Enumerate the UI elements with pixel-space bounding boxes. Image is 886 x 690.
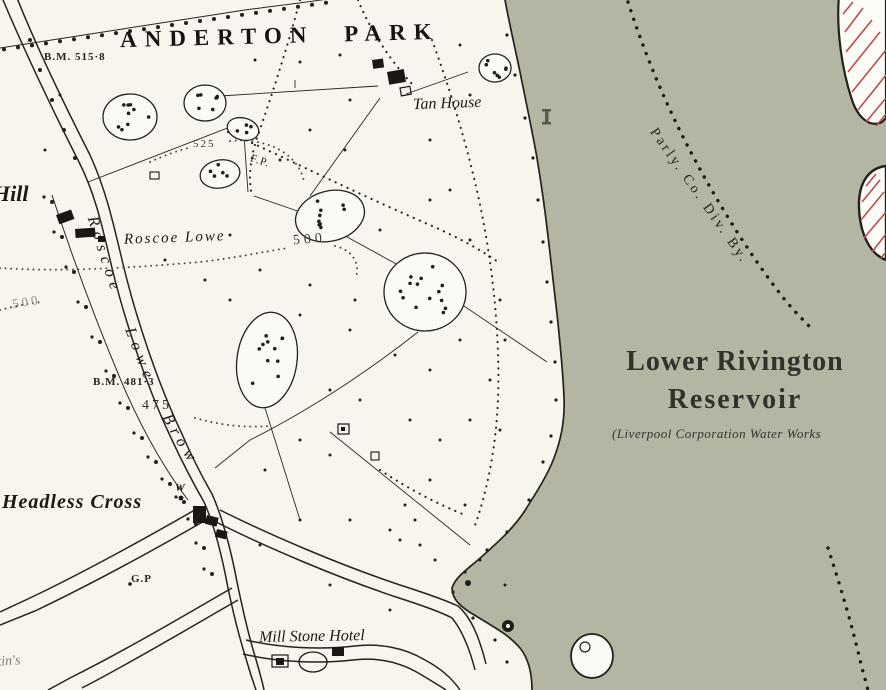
shore-dot [545,280,548,283]
buildings [56,58,411,672]
shore-dot [553,360,556,363]
field-dot [394,354,397,357]
field-dot [434,559,437,562]
field-dot [409,419,412,422]
roadside-tree-dot [42,195,45,198]
tree-dot [341,203,345,207]
tree-dot [440,299,444,303]
hedgerow-tree-dot [254,11,258,15]
partial-label: kin's [0,654,21,670]
tree-dot [215,95,219,99]
headless-cross-label: Headless Cross [2,492,142,512]
roadside-tree-dot [84,305,88,309]
shore-dot [523,116,526,119]
shore-dot [541,240,544,243]
roadside-tree-dot [182,500,186,504]
tree-dot [495,74,499,78]
field-dot [309,129,312,132]
reservoir-name-line1: Lower Rivington [596,346,874,378]
hedgerow-tree-dot [310,3,314,7]
shore-dot [536,198,539,201]
hedgerow-tree-dot [16,45,20,49]
roadside-tree-dot [28,38,32,42]
tree-dot [317,220,321,224]
roadside-tree-dot [146,455,149,458]
roadside-tree-dot [90,335,93,338]
shore-dot [513,73,516,76]
reservoir-title: Lower Rivington Reservoir [596,346,874,416]
field-dot [359,399,362,402]
tree-dot [249,125,253,129]
shore-dot [505,660,508,663]
reservoir-water [452,0,886,690]
tree-dot [129,103,133,107]
contour-475-label: 475 [142,399,172,413]
field-dot [504,339,507,342]
hedgerow-tree-dot [198,19,202,23]
hedgerow-tree-dot [30,43,34,47]
shore-dot [505,530,508,533]
tree-dot [276,375,280,379]
hedgerow-tree-dot [324,1,328,5]
tree-dot [419,277,423,281]
shore-dot [505,33,508,36]
field-dot [379,229,382,232]
shore-dot [541,460,544,463]
field-dot [349,329,352,332]
hedgerow-tree-dot [100,33,104,37]
tree-dot [257,347,261,351]
field-dot [464,504,467,507]
tree-dot [401,296,405,300]
shore-dot [493,638,496,641]
field-dot [479,559,482,562]
field-dot [309,284,312,287]
tree-dot [484,63,488,67]
roadside-tree-dot [194,522,198,526]
tree-dot [319,226,323,230]
field-dot [229,299,232,302]
hedgerow-tree-dot [226,15,230,19]
tree-dot [437,290,441,294]
hedgerow-tree-dot [282,7,286,11]
roadside-tree-dot [202,567,205,570]
roadside-tree-dot [168,482,172,486]
field-dot [254,59,257,62]
tree-dot [318,214,322,218]
tree-dot [428,297,432,301]
field-dot [469,239,472,242]
roadside-tree-dot [62,128,66,132]
tree-dot [236,129,240,133]
shore-dot [549,320,552,323]
tree-dot [127,112,131,116]
hedgerow-tree-dot [86,35,90,39]
shore-dot [531,156,534,159]
tree-dot [399,289,403,293]
tree-dot [431,265,435,269]
field-dot [299,519,302,522]
tree-dot [216,163,220,167]
tree-dot [409,275,413,279]
tree-dot [221,171,225,175]
field-dot [164,259,167,262]
field-dot [449,189,452,192]
tree-dot [120,128,124,132]
roadside-tree-dot [154,460,158,464]
shore-dot [549,434,552,437]
reservoir-subtitle: (Liverpool Corporation Water Works [612,427,821,440]
field-dot [44,149,47,152]
tree-dot [266,340,270,344]
field-dot [414,519,417,522]
hedgerow-tree-dot [58,39,62,43]
tree-dot [281,336,285,340]
field-dot [459,339,462,342]
field-dot [299,439,302,442]
roadside-tree-dot [186,517,189,520]
roadside-tree-dot [126,406,130,410]
hedgerow-tree-dot [296,5,300,9]
tree-dot [197,107,201,111]
field-dot [299,314,302,317]
contour-525-label: 525 [193,139,216,150]
tree-dot [414,306,418,310]
well-label: W [175,483,185,494]
tree-dot [316,199,320,203]
field-dot [204,279,207,282]
tree-dot [245,131,249,135]
tree-dot [276,359,280,363]
tree-dot [196,93,200,97]
roadside-tree-dot [64,265,67,268]
field-dot [344,149,347,152]
roadside-tree-dot [38,68,42,72]
reservoir-name-line2: Reservoir [596,384,874,416]
tree-dot [440,284,444,288]
roadside-tree-dot [210,572,214,576]
tree-dot [122,103,126,107]
tree-dot [147,115,151,119]
field-dot [339,54,342,57]
hedgerow-tree-dot [44,41,48,45]
roadside-tree-dot [140,436,144,440]
guide-post-label: G.P [131,574,152,585]
field-dot [404,504,407,507]
tree-dot [264,334,268,338]
roadside-tree-dot [118,401,121,404]
shore-dot [451,590,454,593]
roadside-tree-dot [50,98,54,102]
tree-dot [493,71,497,75]
hedgerow-tree-dot [212,17,216,21]
map-canvas: Roscoe Lowe Brow ANDERTON PARK B.M. 515·… [0,0,886,690]
benchmark-481-label: B.M. 481·3 [93,377,155,388]
field-dot [329,389,332,392]
tree-dot [261,343,265,347]
hedgerow-tree-dot [72,37,76,41]
shore-dot [471,616,474,619]
field-dot [264,469,267,472]
field-dot [489,379,492,382]
shore-dot [463,570,466,573]
tree-dot [225,174,229,178]
field-dot [329,584,332,587]
tree-dot [319,208,323,212]
roadside-tree-dot [60,235,64,239]
mill-stone-hotel-label: Mill Stone Hotel [259,628,365,646]
field-dot [354,299,357,302]
contour-dotted-lines [0,140,357,426]
tree-dot [342,207,346,211]
tree-dot [273,347,277,351]
tree-dot [416,282,420,286]
tan-house-label: Tan House [413,95,482,113]
hedgerow-tree-dot [240,13,244,17]
field-dot [349,99,352,102]
field-dot [499,299,502,302]
tree-dot [211,108,215,112]
hedgerow-tree-dot [114,31,118,35]
tree-dot [408,282,412,286]
roadside-tree-dot [132,431,135,434]
shore-dot [527,498,530,501]
island [571,634,613,678]
hill-label: Hill [0,183,28,205]
shore-dot [554,398,557,401]
roadside-tree-dot [76,300,79,303]
tree-dot [486,59,490,63]
tree-dot [132,108,136,112]
benchmark-515-label: B.M. 515·8 [44,52,106,63]
tree-dot [266,359,270,363]
roadside-tree-dot [50,200,54,204]
field-dot [419,544,422,547]
tree-dot [209,170,213,174]
field-dot [279,159,282,162]
field-dot [349,519,352,522]
field-boundaries [88,72,547,545]
hedgerow-tree-dot [268,9,272,13]
field-dot [389,609,392,612]
tree-dot [444,307,448,311]
contour-500-label: 500 [292,232,326,249]
field-dot [499,429,502,432]
tree-dot [251,381,255,385]
park-dotted-lines [228,0,498,528]
field-dot [259,544,262,547]
roadside-tree-dot [98,340,102,344]
roadside-tree-dot [73,156,77,160]
roadside-tree-dot [202,546,206,550]
tree-dot [213,174,217,178]
field-dot [399,539,402,542]
field-dot [439,439,442,442]
tree-dot [504,67,508,71]
field-dot [429,199,432,202]
roadside-tree-dot [174,495,177,498]
tree-dot [442,311,446,315]
field-dot [259,269,262,272]
field-dot [389,529,392,532]
tree-dot [126,123,130,127]
field-dot [229,234,232,237]
tree-dot [117,125,121,129]
field-dot [429,479,432,482]
hedgerow-tree-dot [2,47,6,51]
shore-dot [485,548,488,551]
field-dot [299,61,302,64]
tree-dot [245,123,249,127]
field-dot [504,584,507,587]
field-dot [429,369,432,372]
roadside-tree-dot [72,270,76,274]
field-dot [459,44,462,47]
field-dot [59,94,62,97]
roadside-tree-dot [104,369,107,372]
field-dot [469,419,472,422]
field-dot [329,454,332,457]
roadside-tree-dot [52,230,55,233]
roadside-tree-dot [194,541,197,544]
field-dot [429,139,432,142]
roadside-tree-dot [160,477,163,480]
